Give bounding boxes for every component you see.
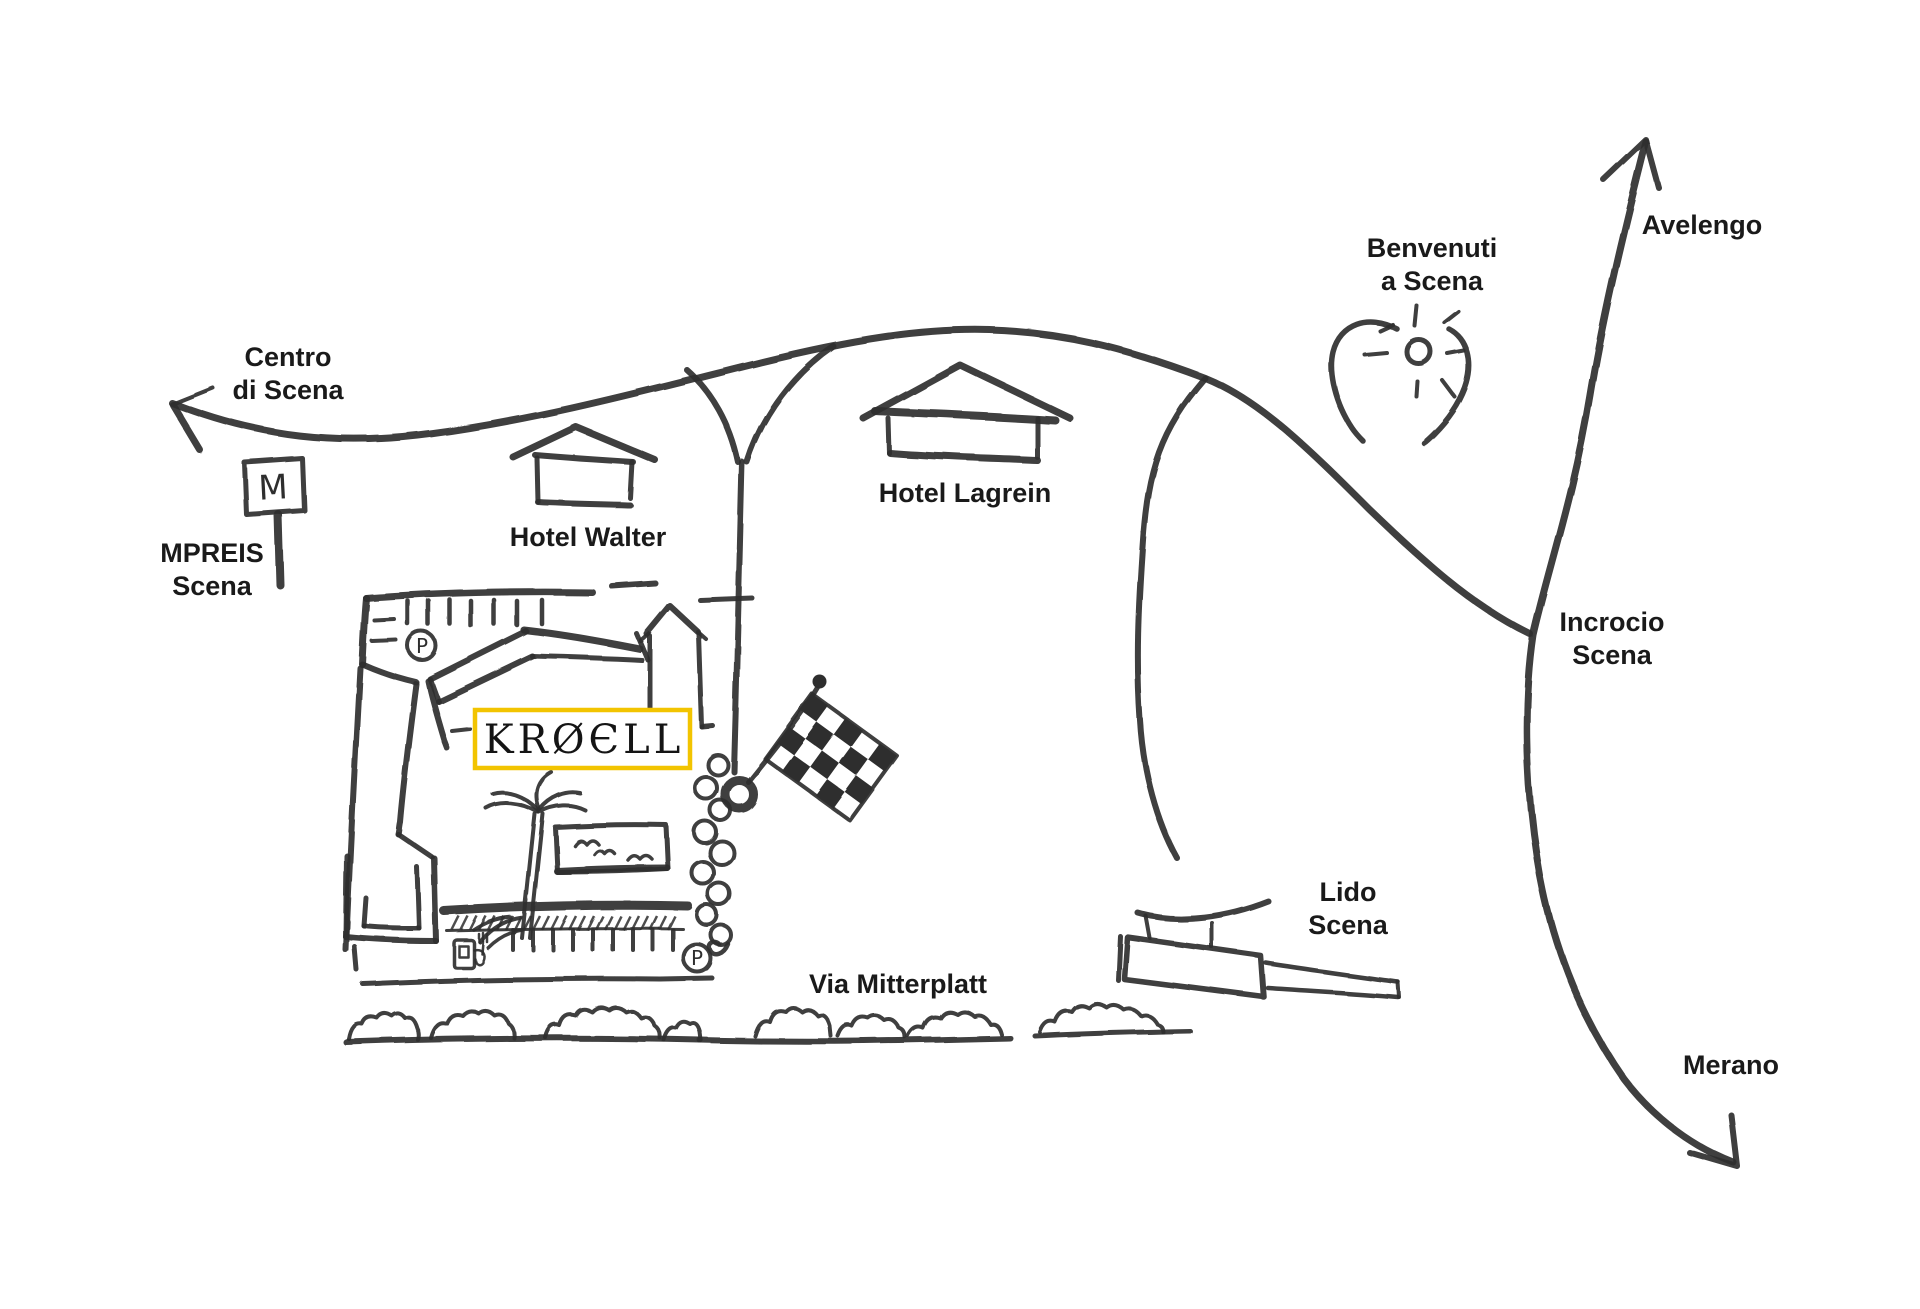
label-hotel-walter: Hotel Walter — [510, 522, 667, 552]
label-via-mitterplatt: Via Mitterplatt — [809, 969, 987, 999]
label-incrocio-line2: Scena — [1572, 640, 1653, 670]
label-lido-line1: Lido — [1320, 877, 1377, 907]
label-mpreis-line2: Scena — [172, 571, 253, 601]
label-avelengo: Avelengo — [1642, 210, 1763, 240]
parking-letter-bottom: P — [691, 946, 703, 970]
gull-icon — [594, 850, 614, 854]
label-benvenuti-line2: a Scena — [1381, 266, 1484, 296]
label-centro-line1: Centro — [245, 342, 332, 372]
label-mpreis-line1: MPREIS — [160, 538, 264, 568]
entrance-structure — [346, 856, 436, 970]
pool-icon — [555, 825, 668, 872]
centro-arrow-icon — [173, 388, 213, 404]
kroell-logo: KRØЄLL — [484, 717, 685, 763]
hotel-lagrein-house-icon — [863, 365, 1070, 460]
map-canvas: M P P KRØЄLL Centro di Scena MPREIS Scen… — [0, 0, 1920, 1309]
parking-letter-top: P — [416, 634, 428, 658]
benvenuti-sun-icon — [1332, 306, 1470, 443]
checkered-flag-icon — [748, 675, 897, 820]
bushes-icon — [346, 1004, 1190, 1042]
map-labels: Centro di Scena MPREIS Scena Hotel Walte… — [160, 210, 1779, 1080]
label-incrocio-line1: Incrocio — [1559, 607, 1664, 637]
charging-station-icon — [454, 940, 484, 968]
label-hotel-lagrein: Hotel Lagrein — [879, 478, 1052, 508]
kroell-logo-box: KRØЄLL — [475, 710, 690, 768]
label-benvenuti-line1: Benvenuti — [1367, 233, 1498, 263]
gull-icon — [574, 840, 598, 845]
mpreis-sign-letter: M — [257, 467, 288, 508]
avelengo-arrow-icon — [1604, 140, 1659, 188]
lido-road — [1138, 378, 1205, 858]
fence-posts — [513, 930, 673, 950]
gull-icon — [628, 856, 652, 861]
parking-slot-lines — [408, 600, 542, 626]
hand-drawn-map: M P P KRØЄLL Centro di Scena MPREIS Scen… — [0, 0, 1920, 1309]
label-centro-line2: di Scena — [232, 375, 344, 405]
main-road — [172, 330, 1530, 634]
hotel-walter-house-icon — [513, 427, 655, 505]
label-merano: Merano — [1683, 1050, 1779, 1080]
label-lido-line2: Scena — [1308, 910, 1389, 940]
